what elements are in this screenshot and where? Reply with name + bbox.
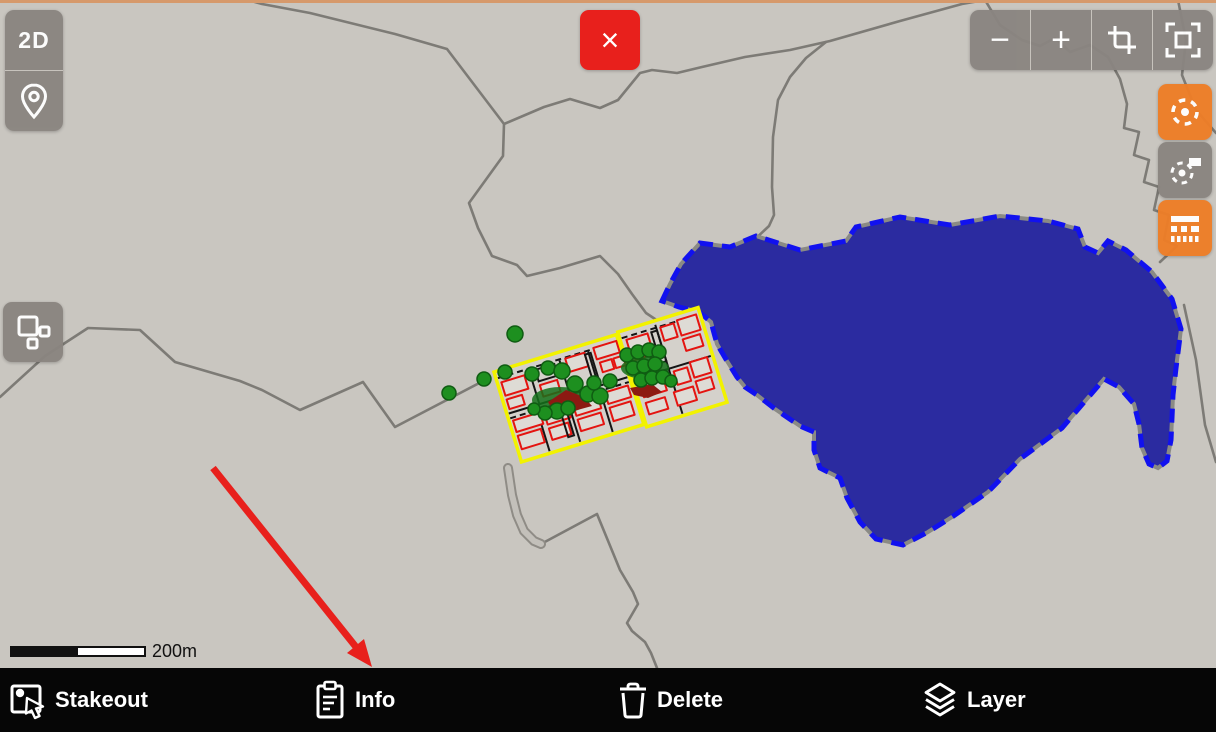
view-controls-stack: 2D <box>5 10 63 131</box>
locate-button[interactable] <box>1158 84 1212 140</box>
map-toolbar: − + <box>970 10 1213 70</box>
toolbar-bars-icon <box>1165 208 1205 248</box>
road <box>504 0 985 124</box>
stakeout-label: Stakeout <box>55 687 148 713</box>
panel-button[interactable] <box>1158 200 1212 256</box>
crop-icon <box>1104 22 1140 58</box>
scale-bar-graphic <box>10 646 146 657</box>
info-button[interactable]: Info <box>304 668 608 732</box>
scale-bar-label: 200m <box>152 641 197 662</box>
stakeout-icon <box>8 680 48 720</box>
minus-icon: − <box>990 23 1010 57</box>
layer-button[interactable]: Layer <box>912 668 1216 732</box>
location-pin-icon <box>17 82 51 120</box>
trash-icon <box>616 680 650 720</box>
crop-button[interactable] <box>1091 10 1152 70</box>
zoom-out-button[interactable]: − <box>970 10 1030 70</box>
scale-bar-dark-half <box>12 648 78 655</box>
fullscreen-frame-icon <box>1164 21 1202 59</box>
blocks-icon <box>13 312 53 352</box>
wide-road <box>508 468 541 544</box>
info-label: Info <box>355 687 395 713</box>
map-canvas[interactable] <box>0 0 1216 732</box>
road <box>0 328 487 427</box>
lake-polygon[interactable] <box>662 216 1181 545</box>
stakeout-button[interactable]: Stakeout <box>0 668 304 732</box>
close-icon: × <box>601 22 620 59</box>
delete-button[interactable]: Delete <box>608 668 912 732</box>
lake-shape <box>662 216 1181 545</box>
location-pin-button[interactable] <box>5 71 63 131</box>
scale-bar: 200m <box>10 641 197 662</box>
road <box>1184 305 1216 462</box>
bottom-action-bar: Stakeout Info Delete <box>0 668 1216 732</box>
layers-icon <box>920 680 960 720</box>
app-screen: 2D × − + <box>0 0 1216 732</box>
crosshair-with-rect-icon <box>1165 150 1205 190</box>
locate-points-button[interactable] <box>1158 142 1212 198</box>
plus-icon: + <box>1051 23 1071 57</box>
top-accent-strip <box>0 0 1216 3</box>
road <box>541 514 657 668</box>
scale-bar-light-half <box>78 648 144 655</box>
close-button[interactable]: × <box>580 10 640 70</box>
view-2d-button[interactable]: 2D <box>5 10 63 70</box>
info-clipboard-icon <box>312 680 348 720</box>
zoom-in-button[interactable]: + <box>1030 10 1091 70</box>
blocks-button[interactable] <box>3 302 63 362</box>
view-2d-label: 2D <box>18 27 49 54</box>
road <box>753 42 826 241</box>
delete-label: Delete <box>657 687 723 713</box>
locate-crosshair-icon <box>1165 92 1205 132</box>
fullscreen-button[interactable] <box>1152 10 1213 70</box>
layer-label: Layer <box>967 687 1026 713</box>
